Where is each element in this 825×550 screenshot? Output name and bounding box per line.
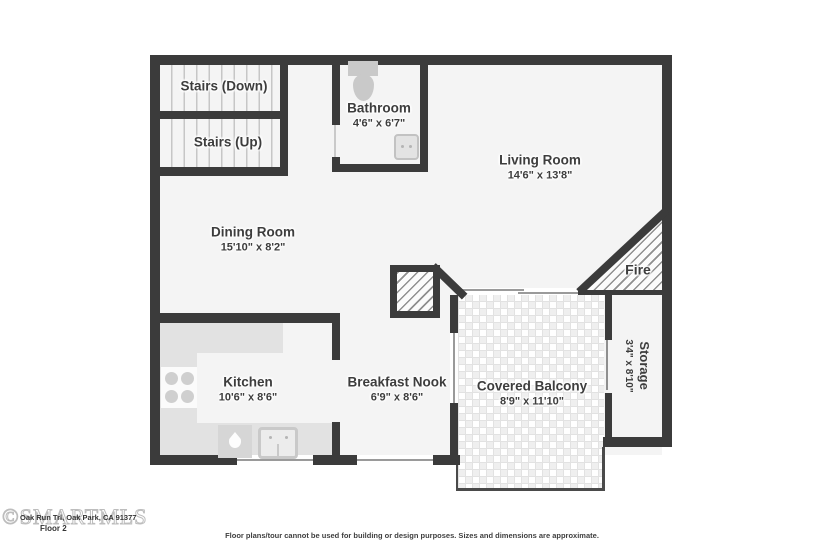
room-label-fireplace: Fire	[625, 261, 651, 279]
property-address: Oak Run Trl, Oak Park, CA 91377	[20, 513, 136, 522]
room-label-bathroom: Bathroom 4'6" x 6'7"	[347, 101, 411, 132]
bathroom-sink-icon	[394, 134, 419, 160]
kitchen-sink-icon	[258, 427, 298, 459]
wall-segment	[603, 437, 672, 447]
stove-icon	[161, 367, 197, 408]
wall-segment	[150, 313, 340, 323]
wall-segment	[332, 422, 340, 465]
disclaimer-text: Floor plans/tour cannot be used for buil…	[225, 531, 599, 540]
room-label-dining-room: Dining Room 15'10" x 8'2"	[211, 225, 295, 256]
wall-segment	[662, 55, 672, 447]
window	[357, 455, 433, 465]
room-label-stairs-down: Stairs (Down)	[180, 79, 267, 96]
wall-segment	[420, 65, 428, 172]
room-label-living-room: Living Room 14'6" x 13'8"	[499, 153, 581, 184]
wall-segment	[150, 55, 672, 65]
room-label-covered-balcony: Covered Balcony 8'9" x 11'10"	[477, 379, 587, 410]
sliding-door	[462, 288, 580, 295]
wall-segment	[150, 167, 288, 176]
wall-segment	[332, 313, 340, 360]
wall-segment	[450, 403, 458, 465]
room-label-storage: Storage 3'4" x 8'10"	[622, 339, 652, 392]
chimney-block	[390, 265, 440, 318]
dishwasher-icon	[218, 425, 252, 458]
floor-plan: Stairs (Down) Stairs (Up) Bathroom 4'6" …	[0, 0, 825, 550]
room-label-stairs-up: Stairs (Up)	[194, 135, 262, 152]
room-label-kitchen: Kitchen 10'6" x 8'6"	[219, 375, 277, 406]
door-opening	[334, 125, 336, 157]
floor-number: Floor 2	[40, 524, 67, 533]
balcony-outline	[602, 447, 605, 491]
balcony-outline	[456, 488, 605, 491]
room-label-breakfast-nook: Breakfast Nook 6'9" x 8'6"	[347, 375, 446, 406]
wall-segment	[332, 65, 340, 125]
wall-segment	[605, 288, 612, 340]
wall-segment	[450, 295, 458, 333]
window	[450, 333, 458, 403]
wall-segment	[150, 111, 288, 119]
door-opening	[606, 340, 608, 390]
wall-segment	[332, 164, 428, 172]
kitchen-counter	[160, 323, 283, 353]
